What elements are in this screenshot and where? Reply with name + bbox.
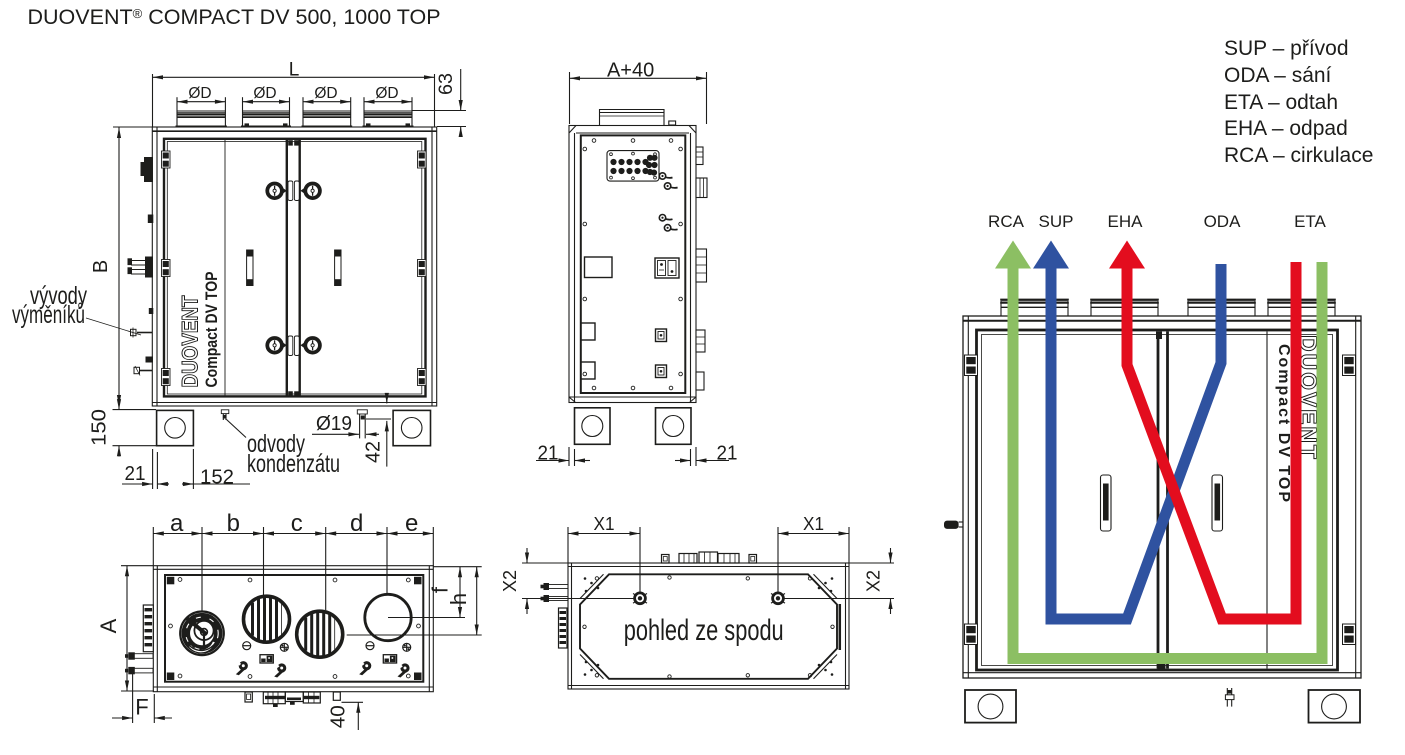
svg-text:ØD: ØD xyxy=(188,85,211,102)
svg-text:DUOVENT: DUOVENT xyxy=(178,295,203,387)
svg-text:c: c xyxy=(291,510,303,537)
svg-text:RCA: RCA xyxy=(988,212,1025,231)
svg-text:21: 21 xyxy=(125,463,146,485)
svg-text:63: 63 xyxy=(436,73,457,95)
svg-text:X1: X1 xyxy=(803,513,824,534)
svg-text:21: 21 xyxy=(538,443,559,465)
svg-text:RCA – cirkulace: RCA – cirkulace xyxy=(1224,144,1373,167)
svg-text:výměníků: výměníků xyxy=(12,301,85,329)
svg-text:f: f xyxy=(428,586,453,593)
svg-text:X2: X2 xyxy=(499,570,520,592)
svg-text:X2: X2 xyxy=(863,570,884,592)
svg-text:EHA: EHA xyxy=(1108,212,1144,231)
svg-text:EHA – odpad: EHA – odpad xyxy=(1224,117,1348,140)
svg-text:a: a xyxy=(170,510,184,537)
svg-text:Ø19: Ø19 xyxy=(316,413,352,435)
svg-text:ETA: ETA xyxy=(1294,212,1326,231)
svg-text:152: 152 xyxy=(200,467,234,489)
svg-text:21: 21 xyxy=(717,443,738,465)
svg-text:L: L xyxy=(289,60,300,81)
svg-text:d: d xyxy=(350,510,363,537)
svg-text:A+40: A+40 xyxy=(607,59,654,81)
svg-text:ETA – odtah: ETA – odtah xyxy=(1224,91,1338,114)
svg-text:SUP: SUP xyxy=(1039,212,1074,231)
svg-text:X1: X1 xyxy=(594,513,615,534)
svg-text:DUOVENT® COMPACT DV 500, 1000: DUOVENT® COMPACT DV 500, 1000 TOP xyxy=(28,5,441,29)
svg-text:ØD: ØD xyxy=(314,85,337,102)
svg-text:ODA – sání: ODA – sání xyxy=(1224,64,1332,87)
svg-text:150: 150 xyxy=(89,409,111,446)
svg-text:SUP – přívod: SUP – přívod xyxy=(1224,37,1349,60)
svg-text:h: h xyxy=(446,593,471,605)
svg-text:ØD: ØD xyxy=(375,85,398,102)
svg-text:pohled ze spodu: pohled ze spodu xyxy=(624,614,784,647)
svg-text:kondenzátu: kondenzátu xyxy=(247,450,340,478)
svg-text:A: A xyxy=(96,618,121,633)
svg-text:F: F xyxy=(135,695,148,720)
svg-text:B: B xyxy=(90,260,112,273)
svg-text:40: 40 xyxy=(328,705,350,728)
svg-text:Compact DV TOP: Compact DV TOP xyxy=(203,272,221,388)
svg-text:ODA: ODA xyxy=(1204,212,1242,231)
svg-text:b: b xyxy=(227,510,240,537)
svg-text:e: e xyxy=(405,510,418,537)
svg-text:ØD: ØD xyxy=(253,85,276,102)
svg-text:42: 42 xyxy=(363,441,385,463)
